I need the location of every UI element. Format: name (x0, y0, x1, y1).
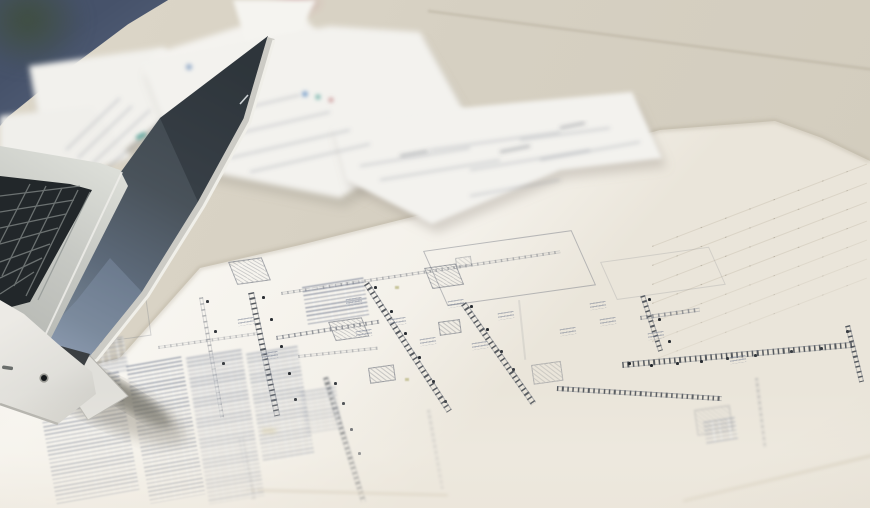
vignette (0, 0, 870, 508)
desk-scene-photo (0, 0, 870, 508)
